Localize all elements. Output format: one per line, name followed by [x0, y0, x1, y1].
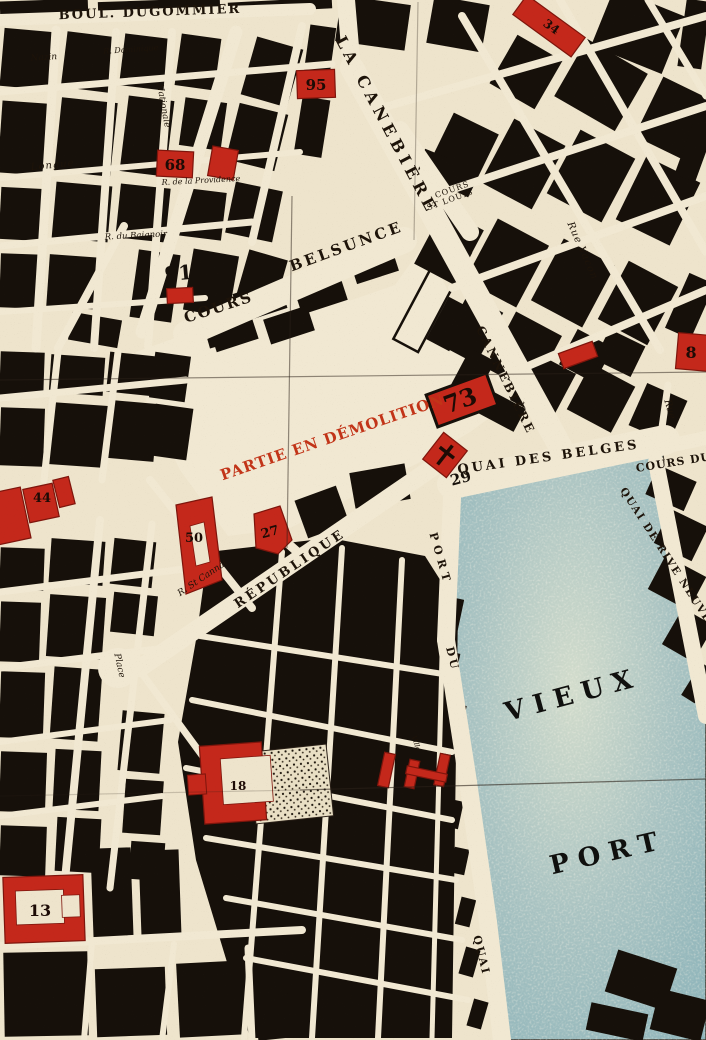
marseille-vieux-port-map: 6895347384450271318 9129BOUL. DUGOMMIERL… — [0, 0, 706, 1040]
scan-grain-texture — [0, 0, 706, 1040]
map-canvas: 6895347384450271318 9129BOUL. DUGOMMIERL… — [0, 0, 706, 1040]
